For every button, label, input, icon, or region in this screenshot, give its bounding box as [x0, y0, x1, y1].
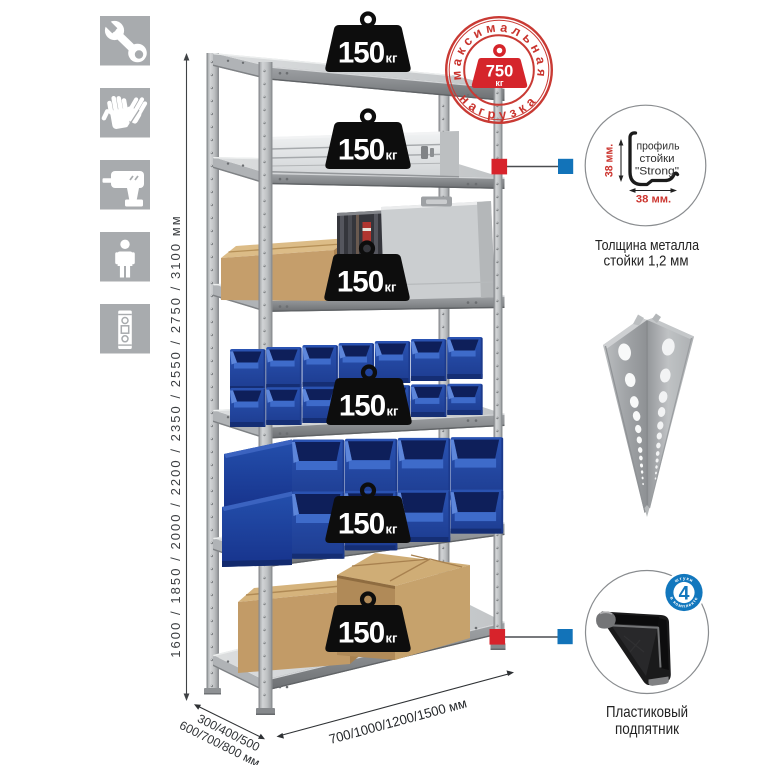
svg-text:стойки 1,2 мм: стойки 1,2 мм — [604, 253, 689, 270]
svg-text:"Strong": "Strong" — [635, 166, 679, 178]
svg-text:профиль: профиль — [637, 141, 680, 153]
svg-text:кг: кг — [495, 78, 504, 88]
svg-text:700/1000/1200/1500 мм: 700/1000/1200/1500 мм — [327, 695, 468, 746]
svg-text:Пластиковый: Пластиковый — [606, 704, 688, 721]
svg-text:подпятник: подпятник — [615, 721, 680, 738]
svg-text:стойки: стойки — [640, 153, 675, 165]
svg-text:1600 / 1850 / 2000 / 2200 / 23: 1600 / 1850 / 2000 / 2200 / 2350 / 2550 … — [168, 214, 183, 658]
svg-text:38 мм.: 38 мм. — [604, 144, 616, 177]
svg-text:38 мм.: 38 мм. — [636, 194, 671, 206]
svg-text:4: 4 — [679, 583, 690, 605]
svg-text:Толщина металла: Толщина металла — [595, 237, 699, 254]
